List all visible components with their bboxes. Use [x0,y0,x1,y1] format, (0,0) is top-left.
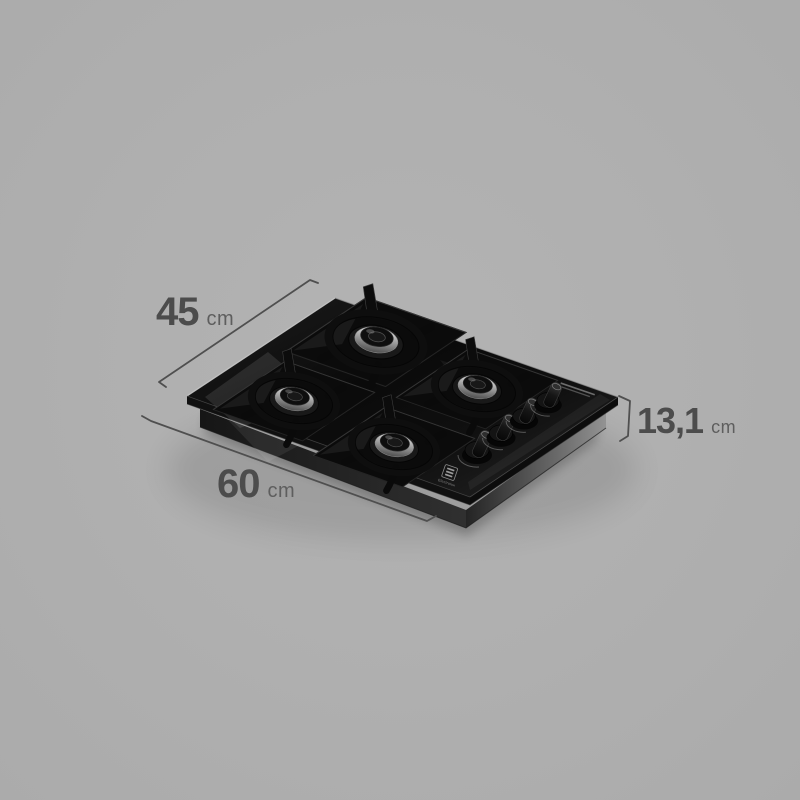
height-value: 13,1 [637,403,703,439]
height-dimension-bracket [619,396,630,441]
depth-dimension-label: 45 cm [156,292,234,332]
depth-unit: cm [207,308,235,331]
product-dimension-diagram: Electrolux 45 cm 60 cm 13,1 cm [0,0,800,800]
width-dimension-label: 60 cm [217,464,295,504]
height-unit: cm [711,417,736,438]
width-value: 60 [217,464,260,504]
width-unit: cm [268,480,296,503]
height-dimension-label: 13,1 cm [637,403,736,439]
depth-value: 45 [156,292,199,332]
